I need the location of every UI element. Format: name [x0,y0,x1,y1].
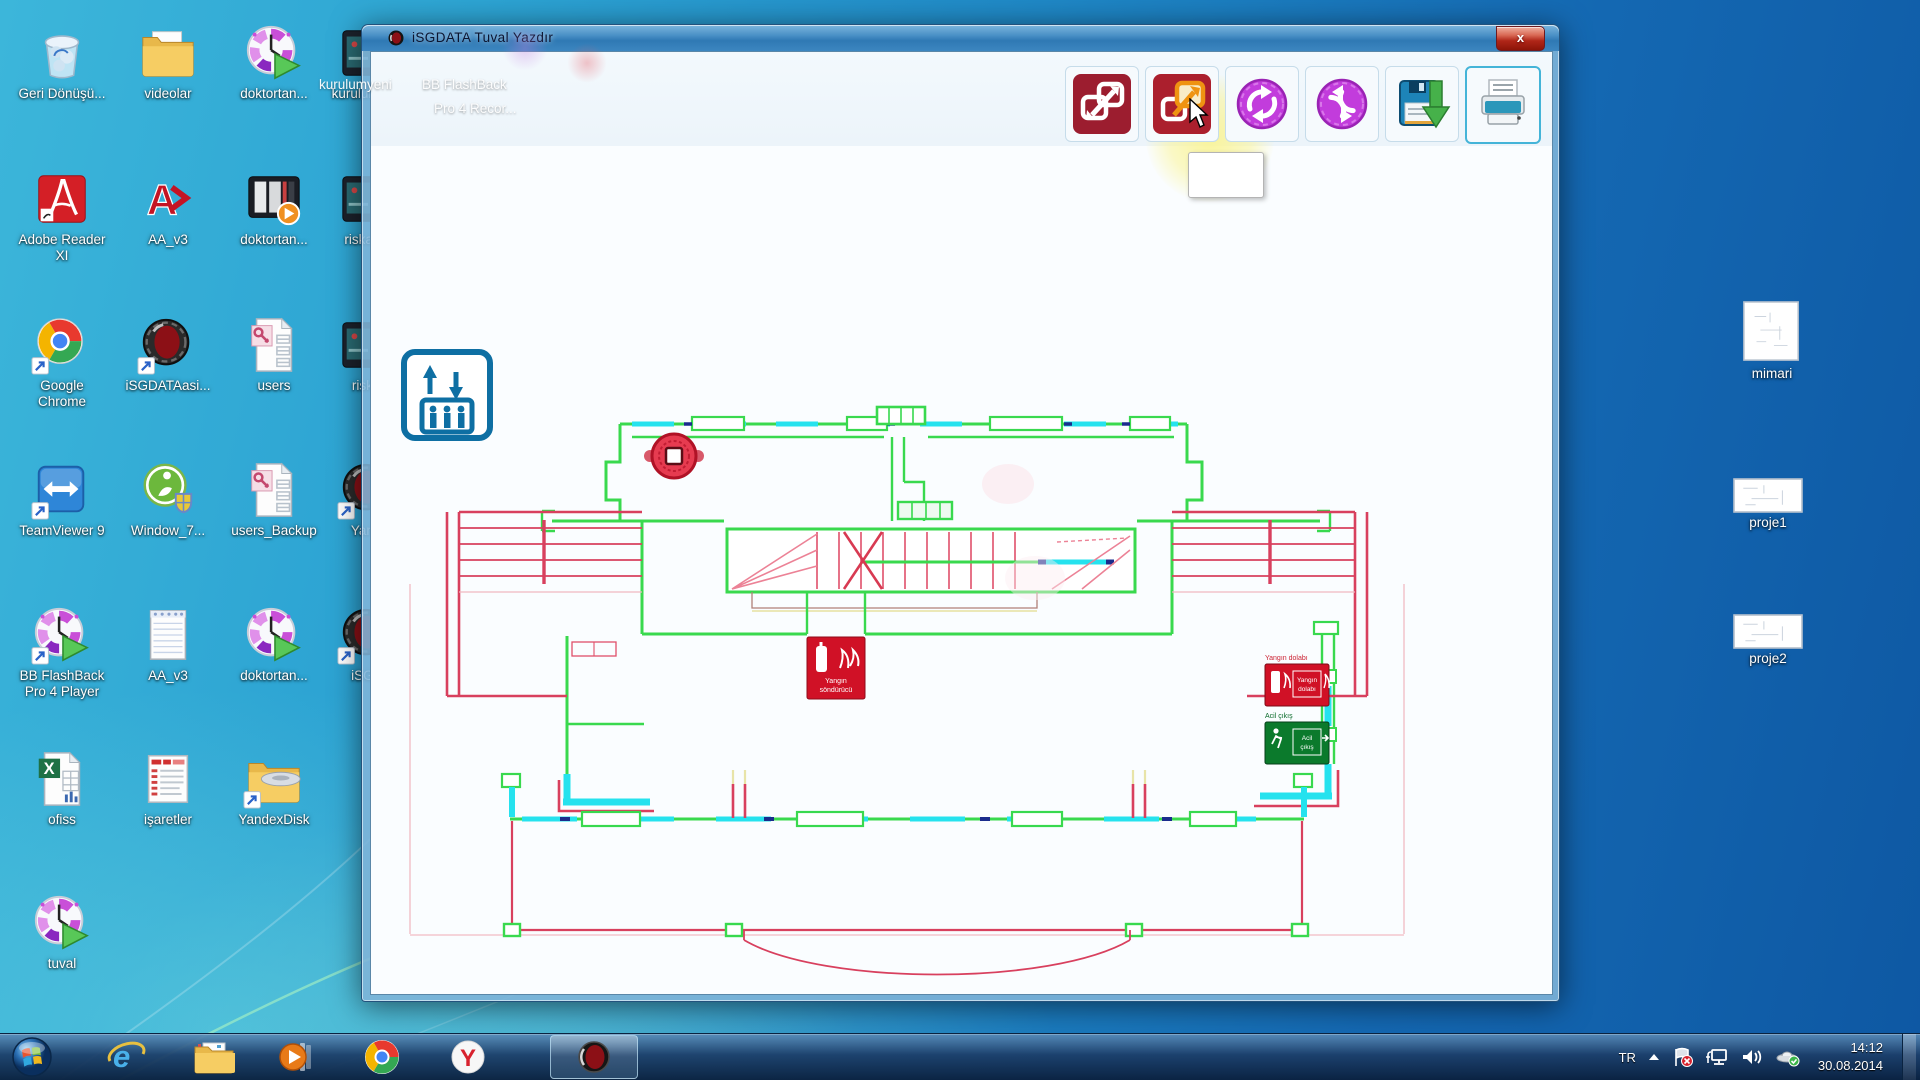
taskbar-wmp-button[interactable] [270,1035,322,1079]
elevator-sign-icon[interactable] [404,352,490,438]
desktop-icon-users-backup[interactable]: users_Backup [228,459,320,539]
desktop-icon-teamviewer-9[interactable]: TeamViewer 9 [16,459,108,539]
accessfile-icon [243,314,305,376]
svg-text:Yangın: Yangın [825,678,847,685]
system-tray: TR 14:12 30.08.2014 [1619,1034,1920,1080]
close-button[interactable]: x [1496,26,1545,51]
desktop-icon-adobe-reader-xi[interactable]: Adobe Reader XI [16,168,108,265]
show-desktop-button[interactable] [1902,1034,1916,1080]
windows-start-icon [11,1036,53,1078]
desktop-icon-geri-d-n[interactable]: Geri Dönüşü... [16,22,108,102]
taskbar-isgdata-button-active[interactable] [550,1035,638,1079]
desktop-icon-proje2[interactable]: proje2 [1722,614,1814,667]
network-icon[interactable] [1705,1047,1729,1067]
desktop-icon-label: Google Chrome [16,378,108,411]
desktop-icon-label: Geri Dönüşü... [16,86,108,102]
svg-text:A: A [147,177,178,225]
desktop-icon-label: YandexDisk [228,812,320,828]
print-icon [1473,74,1533,136]
svg-text:Acil çıkış: Acil çıkış [1265,713,1293,720]
action-center-icon[interactable] [1672,1047,1694,1067]
desktop-icon-proje1[interactable]: proje1 [1722,478,1814,531]
transfer-red-icon [1072,73,1132,135]
desktop-icon-label: doktortan... [228,232,320,248]
chrome-icon [31,314,93,376]
sphere-icon [137,314,199,376]
fire-alarm-icon[interactable] [644,434,704,478]
desktop-icon-aa-v3[interactable]: AA_v3 [122,604,214,684]
clockplay-icon [31,604,93,666]
taskbar-chrome-button[interactable] [356,1035,408,1079]
app-logo-icon [388,30,404,46]
teamviewer-icon [31,459,93,521]
desktop-icon-aa-v3[interactable]: A AA_v3 [122,168,214,248]
window-title: iSGDATA Tuval Yazdır [412,30,553,45]
desktop-icon-users[interactable]: users [228,314,320,394]
folder-icon [137,22,199,84]
toolbar-button-resize[interactable] [1145,66,1219,142]
desktop-icon-label: ofiss [16,812,108,828]
tray-date: 30.08.2014 [1818,1057,1883,1075]
desktop-icon-label: videolar [122,86,214,102]
rotate-magenta-icon [1232,73,1292,135]
desktop-icon-i-aretler[interactable]: işaretler [122,748,214,828]
desktop-icon-label: proje1 [1722,515,1814,531]
fire-cabinet-sign[interactable]: Yangın dolabı Yangın dolabı [1265,655,1329,706]
isgdata-app-icon [577,1040,611,1074]
desktop-icon-window-7[interactable]: Window_7... [122,459,214,539]
toolbar-button-rotate-right[interactable] [1305,66,1379,142]
svg-text:Y: Y [460,1045,476,1072]
desktop-icon-google-chrome[interactable]: Google Chrome [16,314,108,411]
desktop-icon-label: doktortan... [228,86,320,102]
desktop-icon-label: Window_7... [122,523,214,539]
svg-text:Yangın dolabı: Yangın dolabı [1265,655,1308,662]
svg-text:söndürücü: söndürücü [820,687,853,694]
thumb_square-icon [1741,300,1803,364]
tray-clock[interactable]: 14:12 30.08.2014 [1818,1039,1883,1074]
window-client-area: Yangın söndürücü Yangın dolabı Yangın do… [370,51,1553,995]
desktop-icon-isgdataasi[interactable]: iSGDATAasi... [122,314,214,394]
desktop-icon-label: users [228,378,320,394]
window-titlebar[interactable]: iSGDATA Tuval Yazdır x [362,25,1559,51]
aa-icon: A [137,168,199,230]
desktop-icon-doktortan[interactable]: doktortan... [228,604,320,684]
desktop-icon-doktortan[interactable]: doktortan... [228,168,320,248]
excel-icon: X [31,748,93,810]
fire-extinguisher-sign[interactable]: Yangın söndürücü [807,637,865,699]
thumb_wide-icon [1733,478,1803,513]
tray-chevron-icon[interactable] [1647,1052,1661,1062]
desktop-icon-label: Adobe Reader XI [16,232,108,265]
chrome-icon [363,1038,401,1076]
desktop-icon-label: BB FlashBack Pro 4 Player [16,668,108,701]
media-icon [243,168,305,230]
desktop-icon-label: AA_v3 [122,232,214,248]
resize-orange-icon [1152,73,1212,135]
doc-icon [137,748,199,810]
svg-text:Acil: Acil [1302,735,1313,742]
taskbar-yandex-button[interactable]: Y [442,1035,494,1079]
tray-time: 14:12 [1818,1039,1883,1057]
svg-text:çıkış: çıkış [1300,744,1314,751]
clockplay-icon [243,604,305,666]
desktop-icon-label: proje2 [1722,651,1814,667]
tooltip-popup [1188,152,1264,198]
toolbar-button-rotate-left[interactable] [1225,66,1299,142]
taskbar-explorer-button[interactable] [188,1035,240,1079]
desktop-icon-ofiss[interactable]: X ofiss [16,748,108,828]
desktop-icon-label: işaretler [122,812,214,828]
rotate-magenta-2-icon [1312,73,1372,135]
yandex-disk-tray-icon[interactable] [1775,1047,1801,1067]
toolbar-button-transfer[interactable] [1065,66,1139,142]
recycle-icon [31,22,93,84]
desktop-icon-videolar[interactable]: videolar [122,22,214,102]
floor-plan-canvas[interactable]: Yangın söndürücü Yangın dolabı Yangın do… [392,334,1422,994]
desktop-icon-label: iSGDATAasi... [122,378,214,394]
desktop-icon-tuval[interactable]: tuval [16,892,108,972]
thumb_wide-icon [1733,614,1803,649]
tray-language[interactable]: TR [1619,1050,1636,1065]
desktop-icon-bb-flashback-pro-4-player[interactable]: BB FlashBack Pro 4 Player [16,604,108,701]
internet-explorer-icon: e [106,1037,146,1077]
desktop-icon-label: AA_v3 [122,668,214,684]
desktop-icon-label: users_Backup [228,523,320,539]
desktop-icon-mimari[interactable]: mimari [1726,300,1818,382]
taskbar: e Y [0,1033,1920,1080]
clockplay-icon [31,892,93,954]
save-icon [1392,73,1452,135]
clockplay-icon [243,22,305,84]
taskbar-ie-button[interactable]: e [100,1035,152,1079]
svg-text:X: X [44,760,55,778]
svg-text:Yangın: Yangın [1297,677,1318,684]
desktop-icon-label: tuval [16,956,108,972]
folder-icon [193,1039,235,1075]
svg-text:dolabı: dolabı [1298,686,1316,693]
desktop-icon-label: doktortan... [228,668,320,684]
start-button[interactable] [6,1035,58,1079]
desktop-icon-yandexdisk[interactable]: YandexDisk [228,748,320,828]
yandex-browser-icon: Y [449,1038,487,1076]
adobe-icon [31,168,93,230]
desktop-icon-doktortan[interactable]: doktortan... [228,22,320,102]
emergency-exit-sign[interactable]: Acil çıkış Acil çıkış [1265,713,1329,764]
toolbar-button-save[interactable] [1385,66,1459,142]
accessfile-icon [243,459,305,521]
yandexfolder-icon [243,748,305,810]
media-player-icon [277,1038,315,1076]
volume-icon[interactable] [1740,1047,1764,1067]
app-window: iSGDATA Tuval Yazdır x [361,24,1560,1002]
toolbar-button-print[interactable] [1465,66,1541,144]
desktop-icon-label: mimari [1726,366,1818,382]
win7-icon [137,459,199,521]
notepad-icon [137,604,199,666]
desktop-icon-label: TeamViewer 9 [16,523,108,539]
